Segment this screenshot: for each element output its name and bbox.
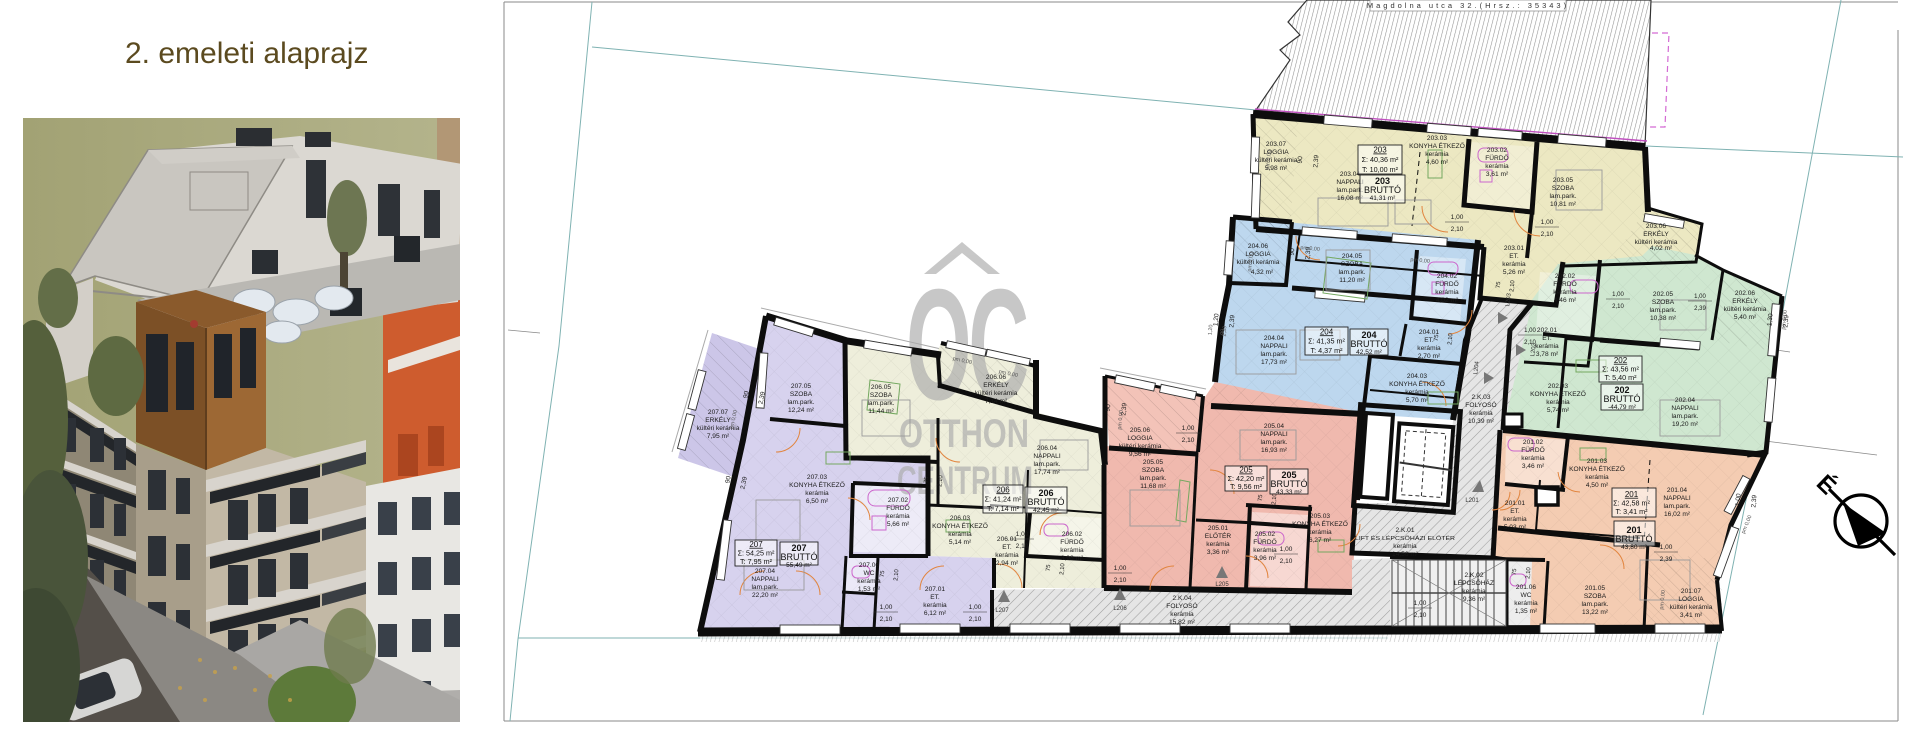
svg-text:2,10: 2,10 bbox=[1525, 566, 1532, 579]
svg-text:L206: L206 bbox=[1113, 606, 1127, 612]
svg-text:207.07: 207.07 bbox=[708, 409, 729, 416]
svg-text:1,00: 1,00 bbox=[1280, 546, 1293, 553]
svg-text:1,20: 1,20 bbox=[1208, 324, 1215, 335]
svg-text:2,10: 2,10 bbox=[880, 616, 893, 623]
svg-text:202.06: 202.06 bbox=[1735, 290, 1756, 297]
svg-text:5,03 m²: 5,03 m² bbox=[1504, 524, 1527, 531]
svg-text:207.05: 207.05 bbox=[791, 383, 812, 390]
svg-text:203.06: 203.06 bbox=[1646, 223, 1667, 230]
svg-text:204.03: 204.03 bbox=[1407, 373, 1428, 380]
svg-text:ET.: ET. bbox=[1510, 508, 1520, 515]
svg-text:1,00: 1,00 bbox=[1734, 493, 1742, 507]
svg-text:205.06: 205.06 bbox=[1130, 427, 1151, 434]
svg-text:4,32 m²: 4,32 m² bbox=[1251, 269, 1274, 276]
svg-text:206.05: 206.05 bbox=[871, 384, 892, 391]
svg-text:203.04: 203.04 bbox=[1340, 171, 1361, 178]
svg-text:lam.park.: lam.park. bbox=[1549, 193, 1576, 200]
svg-text:kerámia: kerámia bbox=[1521, 455, 1545, 462]
svg-text:2,10: 2,10 bbox=[937, 474, 944, 487]
svg-text:202.02: 202.02 bbox=[1555, 273, 1576, 280]
svg-text:204.06: 204.06 bbox=[1248, 243, 1269, 250]
svg-text:Σ: 41,24 m²: Σ: 41,24 m² bbox=[985, 495, 1022, 504]
svg-text:BRUTTÓ: BRUTTÓ bbox=[1604, 394, 1641, 404]
svg-text:lam.park.: lam.park. bbox=[1033, 461, 1060, 468]
svg-text:2,70 m²: 2,70 m² bbox=[1418, 353, 1441, 360]
svg-text:kültéri kerámia: kültéri kerámia bbox=[1724, 306, 1767, 313]
svg-text:10,81 m²: 10,81 m² bbox=[1550, 201, 1577, 208]
svg-text:1,00: 1,00 bbox=[1114, 565, 1127, 572]
svg-text:201.03: 201.03 bbox=[1587, 458, 1608, 465]
svg-text:LOGGIA: LOGGIA bbox=[1127, 435, 1153, 442]
svg-text:75: 75 bbox=[1496, 281, 1503, 289]
svg-text:9,36 m²: 9,36 m² bbox=[1463, 596, 1486, 603]
svg-text:T: 9,56 m²: T: 9,56 m² bbox=[1230, 482, 1263, 491]
svg-text:KONYHA ÉTKEZŐ: KONYHA ÉTKEZŐ bbox=[1292, 519, 1348, 528]
svg-text:3,61 m²: 3,61 m² bbox=[1486, 171, 1509, 178]
svg-text:SZOBA: SZOBA bbox=[1584, 593, 1607, 600]
svg-text:17,74 m²: 17,74 m² bbox=[1034, 469, 1061, 476]
svg-text:FOLYOSÓ: FOLYOSÓ bbox=[1166, 601, 1197, 610]
svg-text:205.05: 205.05 bbox=[1143, 459, 1164, 466]
svg-text:NAPPALI: NAPPALI bbox=[1260, 431, 1288, 438]
svg-text:lam.park.: lam.park. bbox=[1663, 503, 1690, 510]
svg-text:206.03: 206.03 bbox=[950, 515, 971, 522]
svg-text:16,93 m²: 16,93 m² bbox=[1261, 447, 1288, 454]
svg-text:204.02: 204.02 bbox=[1437, 273, 1458, 280]
svg-text:ERKÉLY: ERKÉLY bbox=[983, 380, 1009, 389]
svg-text:2.K.04: 2.K.04 bbox=[1172, 595, 1191, 602]
svg-text:1,00: 1,00 bbox=[1541, 219, 1554, 226]
svg-text:204.04: 204.04 bbox=[1264, 335, 1285, 342]
svg-text:2,10: 2,10 bbox=[1612, 304, 1624, 310]
svg-text:2,10: 2,10 bbox=[969, 616, 982, 623]
svg-text:90: 90 bbox=[1105, 404, 1113, 412]
svg-text:2. emeleti alaprajz: 2. emeleti alaprajz bbox=[125, 37, 368, 70]
svg-text:55,49 m²: 55,49 m² bbox=[786, 562, 812, 569]
svg-text:201.02: 201.02 bbox=[1523, 439, 1544, 446]
svg-text:kerámia: kerámia bbox=[1485, 163, 1509, 170]
svg-text:kerámia: kerámia bbox=[995, 552, 1019, 559]
svg-text:kültéri kerámia: kültéri kerámia bbox=[1119, 443, 1162, 450]
svg-text:kerámia: kerámia bbox=[1503, 516, 1527, 523]
svg-text:10,39 m²: 10,39 m² bbox=[1468, 418, 1495, 425]
svg-text:ET.: ET. bbox=[930, 594, 940, 601]
svg-text:Magdolna utca 32.(Hrsz.: 35343: Magdolna utca 32.(Hrsz.: 35343) bbox=[1367, 1, 1569, 10]
svg-text:204: 204 bbox=[1320, 327, 1334, 336]
svg-text:kerámia: kerámia bbox=[923, 602, 947, 609]
svg-text:2,94 m²: 2,94 m² bbox=[996, 560, 1019, 567]
svg-text:kerámia: kerámia bbox=[1462, 588, 1486, 595]
svg-text:T: 10,00 m²: T: 10,00 m² bbox=[1362, 165, 1399, 174]
svg-text:201.01: 201.01 bbox=[1505, 500, 1526, 507]
svg-text:2,10: 2,10 bbox=[1280, 558, 1293, 565]
svg-text:41,31 m²: 41,31 m² bbox=[1370, 195, 1396, 202]
svg-text:90: 90 bbox=[1297, 156, 1305, 164]
svg-text:T: 7,14 m²: T: 7,14 m² bbox=[987, 504, 1020, 513]
svg-text:17,73 m²: 17,73 m² bbox=[1261, 359, 1288, 366]
svg-text:1,53 m²: 1,53 m² bbox=[858, 586, 881, 593]
svg-text:FÜRDŐ: FÜRDŐ bbox=[1553, 279, 1576, 288]
svg-text:201.07: 201.07 bbox=[1681, 588, 1702, 595]
svg-text:NAPPALI: NAPPALI bbox=[1671, 405, 1699, 412]
svg-text:kerámia: kerámia bbox=[1502, 261, 1526, 268]
svg-text:6,12 m²: 6,12 m² bbox=[924, 610, 947, 617]
svg-text:FÜRDŐ: FÜRDŐ bbox=[1435, 279, 1458, 288]
svg-text:42,52 m²: 42,52 m² bbox=[1356, 349, 1382, 356]
svg-text:lam.park.: lam.park. bbox=[1139, 475, 1166, 482]
svg-text:5,74 m²: 5,74 m² bbox=[1547, 407, 1570, 414]
svg-text:2,10: 2,10 bbox=[893, 568, 900, 581]
svg-text:Σ: 40,36 m²: Σ: 40,36 m² bbox=[1362, 155, 1399, 164]
svg-text:SZOBA: SZOBA bbox=[1652, 299, 1675, 306]
svg-text:14,56 m²: 14,56 m² bbox=[1392, 551, 1419, 558]
svg-text:207.01: 207.01 bbox=[925, 586, 946, 593]
svg-text:2.K.02: 2.K.02 bbox=[1464, 572, 1483, 579]
svg-text:203: 203 bbox=[1373, 146, 1387, 155]
svg-text:4,60 m²: 4,60 m² bbox=[1426, 159, 1449, 166]
svg-text:kerámia: kerámia bbox=[1308, 529, 1332, 536]
svg-text:75: 75 bbox=[1046, 564, 1053, 572]
svg-text:ET.: ET. bbox=[1424, 337, 1434, 344]
svg-text:22,20 m²: 22,20 m² bbox=[752, 592, 779, 599]
svg-text:206.01: 206.01 bbox=[997, 536, 1018, 543]
svg-text:13,22 m²: 13,22 m² bbox=[1582, 609, 1609, 616]
svg-text:16,02 m²: 16,02 m² bbox=[1664, 511, 1691, 518]
svg-text:75: 75 bbox=[1258, 494, 1265, 502]
svg-text:1,00: 1,00 bbox=[1694, 294, 1706, 300]
svg-text:1,00: 1,00 bbox=[1016, 531, 1029, 538]
svg-text:15,82 m²: 15,82 m² bbox=[1169, 619, 1196, 626]
svg-text:KONYHA ÉTKEZŐ: KONYHA ÉTKEZŐ bbox=[1409, 141, 1465, 150]
svg-text:T: 3,41 m²: T: 3,41 m² bbox=[1616, 507, 1649, 516]
svg-text:1,30: 1,30 bbox=[1766, 313, 1774, 327]
svg-text:ET.: ET. bbox=[1542, 335, 1552, 342]
svg-text:6,50 m²: 6,50 m² bbox=[806, 498, 829, 505]
svg-text:BRUTTÓ: BRUTTÓ bbox=[1351, 339, 1388, 349]
svg-text:LIFT ÉS LÉPCSŐHÁZI ELŐTÉR: LIFT ÉS LÉPCSŐHÁZI ELŐTÉR bbox=[1355, 535, 1455, 542]
svg-text:lam.park.: lam.park. bbox=[1338, 269, 1365, 276]
svg-text:2,10: 2,10 bbox=[1414, 612, 1427, 619]
svg-text:3,36 m²: 3,36 m² bbox=[1207, 549, 1230, 556]
svg-text:T: 5,40 m²: T: 5,40 m² bbox=[1605, 373, 1638, 382]
svg-text:kerámia: kerámia bbox=[886, 513, 910, 520]
svg-text:206.04: 206.04 bbox=[1037, 445, 1058, 452]
svg-text:5,66 m²: 5,66 m² bbox=[887, 521, 910, 528]
svg-text:205.03: 205.03 bbox=[1310, 513, 1331, 520]
svg-text:10,38 m²: 10,38 m² bbox=[1650, 315, 1677, 322]
svg-text:5,14 m²: 5,14 m² bbox=[949, 539, 972, 546]
svg-text:kerámia: kerámia bbox=[1514, 600, 1538, 607]
svg-text:kültéri kerámia: kültéri kerámia bbox=[1255, 157, 1298, 164]
svg-text:kerámia: kerámia bbox=[1393, 543, 1417, 550]
svg-text:204.05: 204.05 bbox=[1342, 253, 1363, 260]
svg-text:4,46 m²: 4,46 m² bbox=[1554, 297, 1577, 304]
svg-text:SZOBA: SZOBA bbox=[790, 391, 813, 398]
svg-text:kerámia: kerámia bbox=[1170, 611, 1194, 618]
svg-text:BRUTTÓ: BRUTTÓ bbox=[1028, 497, 1065, 507]
svg-text:FÜRDŐ: FÜRDŐ bbox=[1060, 537, 1083, 546]
svg-text:1,20: 1,20 bbox=[1212, 313, 1220, 327]
svg-text:Σ: 54,25 m²: Σ: 54,25 m² bbox=[738, 548, 775, 557]
svg-text:205.02: 205.02 bbox=[1255, 531, 1276, 538]
svg-text:NAPPALI: NAPPALI bbox=[1260, 343, 1288, 350]
svg-text:kültéri kerámia: kültéri kerámia bbox=[1237, 259, 1280, 266]
svg-text:SZOBA: SZOBA bbox=[1142, 467, 1165, 474]
svg-text:BRUTTÓ: BRUTTÓ bbox=[1271, 479, 1308, 489]
svg-text:201.06: 201.06 bbox=[1516, 584, 1537, 591]
svg-text:2,10: 2,10 bbox=[1447, 332, 1454, 345]
svg-text:lam.park.: lam.park. bbox=[1260, 351, 1287, 358]
svg-text:207.03: 207.03 bbox=[807, 474, 828, 481]
svg-text:SZOBA: SZOBA bbox=[870, 392, 893, 399]
svg-text:9,56 m²: 9,56 m² bbox=[1129, 451, 1152, 458]
svg-text:2,10: 2,10 bbox=[1451, 226, 1464, 233]
svg-text:2,39: 2,39 bbox=[1750, 494, 1758, 508]
svg-text:kerámia: kerámia bbox=[948, 531, 972, 538]
svg-text:203.03: 203.03 bbox=[1427, 135, 1448, 142]
svg-text:ERKÉLY: ERKÉLY bbox=[1732, 296, 1758, 305]
svg-text:11,68 m²: 11,68 m² bbox=[1140, 483, 1166, 490]
svg-text:OTTHON: OTTHON bbox=[899, 412, 1029, 456]
svg-text:1,00: 1,00 bbox=[880, 604, 893, 611]
svg-text:207.02: 207.02 bbox=[888, 497, 909, 504]
svg-text:207.06: 207.06 bbox=[859, 562, 880, 569]
svg-text:2,10: 2,10 bbox=[1541, 231, 1554, 238]
svg-text:202.01: 202.01 bbox=[1537, 327, 1558, 334]
svg-text:4,02 m²: 4,02 m² bbox=[1436, 297, 1459, 304]
svg-text:2,10: 2,10 bbox=[1271, 492, 1278, 505]
svg-text:202.03: 202.03 bbox=[1548, 383, 1569, 390]
svg-text:lam.park.: lam.park. bbox=[867, 400, 894, 407]
svg-text:BRUTTÓ: BRUTTÓ bbox=[1616, 534, 1653, 544]
svg-text:FÜRDŐ: FÜRDŐ bbox=[1253, 537, 1276, 546]
svg-text:11,20 m²: 11,20 m² bbox=[1339, 277, 1365, 284]
svg-text:WC: WC bbox=[864, 570, 875, 577]
svg-text:5,40 m²: 5,40 m² bbox=[1734, 314, 1757, 321]
svg-text:203.01: 203.01 bbox=[1504, 245, 1525, 252]
svg-text:202.05: 202.05 bbox=[1653, 291, 1674, 298]
svg-text:T: 7,95 m²: T: 7,95 m² bbox=[740, 557, 773, 566]
svg-text:L205: L205 bbox=[1215, 582, 1229, 588]
svg-text:Σ: 41,35 m²: Σ: 41,35 m² bbox=[1308, 337, 1345, 346]
svg-text:FÜRDŐ: FÜRDŐ bbox=[886, 503, 909, 512]
svg-text:lam.park.: lam.park. bbox=[1649, 307, 1676, 314]
svg-text:75: 75 bbox=[880, 570, 887, 578]
svg-text:lam.park.: lam.park. bbox=[1671, 413, 1698, 420]
svg-text:ERKÉLY: ERKÉLY bbox=[705, 415, 731, 424]
svg-text:75: 75 bbox=[1434, 334, 1441, 342]
svg-text:203.07: 203.07 bbox=[1266, 141, 1287, 148]
svg-text:2,39: 2,39 bbox=[1694, 306, 1706, 312]
svg-text:5,70 m²: 5,70 m² bbox=[1406, 397, 1429, 404]
svg-text:11,44 m²: 11,44 m² bbox=[868, 408, 894, 415]
svg-text:KONYHA ÉTKEZŐ: KONYHA ÉTKEZŐ bbox=[932, 521, 988, 530]
svg-text:5,26 m²: 5,26 m² bbox=[1503, 269, 1526, 276]
svg-text:2.K.01: 2.K.01 bbox=[1395, 527, 1414, 534]
svg-text:lam.park.: lam.park. bbox=[1260, 439, 1287, 446]
svg-text:1,00: 1,00 bbox=[1414, 600, 1427, 607]
svg-text:3,96 m²: 3,96 m² bbox=[1254, 555, 1277, 562]
svg-text:205.01: 205.01 bbox=[1208, 525, 1229, 532]
svg-text:201.04: 201.04 bbox=[1667, 487, 1688, 494]
svg-text:75: 75 bbox=[1512, 568, 1519, 576]
svg-text:75: 75 bbox=[924, 476, 931, 484]
svg-text:2,39: 2,39 bbox=[1312, 154, 1320, 168]
svg-text:2.K.03: 2.K.03 bbox=[1471, 394, 1490, 401]
svg-text:2,10: 2,10 bbox=[1059, 562, 1066, 575]
svg-text:kerámia: kerámia bbox=[857, 578, 881, 585]
svg-text:LOGGIA: LOGGIA bbox=[1678, 596, 1704, 603]
svg-text:Σ: 42,58 m²: Σ: 42,58 m² bbox=[1613, 498, 1650, 507]
svg-text:43,80 m²: 43,80 m² bbox=[1621, 544, 1647, 551]
svg-text:1,35 m²: 1,35 m² bbox=[1515, 608, 1538, 615]
svg-text:kerámia: kerámia bbox=[1469, 410, 1493, 417]
svg-text:2,10: 2,10 bbox=[1509, 279, 1516, 292]
svg-text:kerámia: kerámia bbox=[1206, 541, 1230, 548]
svg-text:kerámia: kerámia bbox=[1060, 547, 1084, 554]
svg-text:KONYHA ÉTKEZŐ: KONYHA ÉTKEZŐ bbox=[1530, 389, 1586, 398]
svg-text:ET.: ET. bbox=[1002, 544, 1012, 551]
svg-text:SZOBA: SZOBA bbox=[1341, 261, 1364, 268]
svg-text:L207: L207 bbox=[995, 608, 1009, 614]
svg-text:207.04: 207.04 bbox=[755, 568, 776, 575]
svg-text:201.05: 201.05 bbox=[1585, 585, 1606, 592]
svg-text:12,24 m²: 12,24 m² bbox=[788, 407, 815, 414]
svg-text:2,10: 2,10 bbox=[1182, 437, 1195, 444]
svg-text:ERKÉLY: ERKÉLY bbox=[1643, 229, 1669, 238]
svg-text:kerámia: kerámia bbox=[1546, 399, 1570, 406]
svg-text:203.05: 203.05 bbox=[1553, 177, 1574, 184]
svg-text:2,39: 2,39 bbox=[1228, 314, 1236, 328]
svg-text:BRUTTÓ: BRUTTÓ bbox=[781, 552, 818, 562]
svg-text:kültéri kerámia: kültéri kerámia bbox=[975, 390, 1018, 397]
svg-text:1,00: 1,00 bbox=[1524, 328, 1536, 334]
svg-text:kültéri kerámia: kültéri kerámia bbox=[1670, 604, 1713, 611]
svg-text:1,00: 1,00 bbox=[969, 604, 982, 611]
svg-text:T: 4,37 m²: T: 4,37 m² bbox=[1311, 346, 1344, 355]
svg-text:SZOBA: SZOBA bbox=[1552, 185, 1575, 192]
svg-text:42,45 m²: 42,45 m² bbox=[1033, 507, 1059, 514]
svg-text:3,41 m²: 3,41 m² bbox=[1680, 612, 1703, 619]
svg-text:90: 90 bbox=[1220, 329, 1227, 336]
svg-text:kerámia: kerámia bbox=[805, 490, 829, 497]
svg-text:kerámia: kerámia bbox=[1417, 345, 1441, 352]
svg-text:1,00: 1,00 bbox=[1612, 292, 1624, 298]
svg-text:2,10: 2,10 bbox=[1114, 577, 1127, 584]
svg-text:kerámia: kerámia bbox=[1405, 389, 1429, 396]
svg-text:7,95 m²: 7,95 m² bbox=[707, 433, 730, 440]
svg-text:-44,79 m²: -44,79 m² bbox=[1608, 404, 1637, 411]
svg-text:206: 206 bbox=[996, 485, 1010, 494]
svg-text:NAPPALI: NAPPALI bbox=[751, 576, 779, 583]
svg-text:4,02 m²: 4,02 m² bbox=[1650, 245, 1673, 252]
svg-text:KONYHA ÉTKEZŐ: KONYHA ÉTKEZŐ bbox=[789, 480, 845, 489]
svg-text:kerámia: kerámia bbox=[1253, 547, 1277, 554]
svg-text:FÜRDŐ: FÜRDŐ bbox=[1521, 445, 1544, 454]
svg-text:1,00: 1,00 bbox=[1451, 214, 1464, 221]
svg-text:KONYHA ÉTKEZŐ: KONYHA ÉTKEZŐ bbox=[1569, 464, 1625, 473]
svg-text:lam.park.: lam.park. bbox=[787, 399, 814, 406]
svg-text:WC: WC bbox=[1521, 592, 1532, 599]
svg-text:1,00: 1,00 bbox=[1660, 544, 1673, 551]
svg-text:90: 90 bbox=[1289, 248, 1297, 256]
svg-text:3,46 m²: 3,46 m² bbox=[1522, 463, 1545, 470]
svg-text:LÉPCSŐHÁZ: LÉPCSŐHÁZ bbox=[1454, 578, 1494, 587]
svg-text:19,20 m²: 19,20 m² bbox=[1672, 421, 1699, 428]
svg-text:kerámia: kerámia bbox=[1535, 343, 1559, 350]
svg-text:Σ: 43,56 m²: Σ: 43,56 m² bbox=[1602, 364, 1639, 373]
svg-text:3,98 m²: 3,98 m² bbox=[1061, 555, 1084, 562]
svg-text:lam.park.: lam.park. bbox=[751, 584, 778, 591]
svg-text:43,33 m²: 43,33 m² bbox=[1276, 489, 1302, 496]
svg-text:NAPPALI: NAPPALI bbox=[1033, 453, 1061, 460]
svg-text:6,27 m²: 6,27 m² bbox=[1309, 537, 1332, 544]
svg-text:kerámia: kerámia bbox=[1585, 474, 1609, 481]
svg-text:3,78 m²: 3,78 m² bbox=[1536, 351, 1559, 358]
svg-text:1,00: 1,00 bbox=[1182, 425, 1195, 432]
svg-text:2,10: 2,10 bbox=[1016, 543, 1029, 550]
svg-text:FÜRDŐ: FÜRDŐ bbox=[1485, 153, 1508, 162]
svg-text:205.04: 205.04 bbox=[1264, 423, 1285, 430]
svg-text:kerámia: kerámia bbox=[1553, 289, 1577, 296]
svg-text:ELŐTÉR: ELŐTÉR bbox=[1205, 531, 1232, 540]
svg-text:FOLYOSÓ: FOLYOSÓ bbox=[1465, 400, 1496, 409]
svg-text:ET.: ET. bbox=[1509, 253, 1519, 260]
svg-text:7,14 m²: 7,14 m² bbox=[985, 398, 1008, 405]
svg-text:kerámia: kerámia bbox=[1425, 151, 1449, 158]
svg-text:L201: L201 bbox=[1465, 498, 1479, 504]
svg-text:BRUTTÓ: BRUTTÓ bbox=[1364, 185, 1401, 195]
svg-text:2,39: 2,39 bbox=[1660, 556, 1673, 563]
svg-text:kerámia: kerámia bbox=[1435, 289, 1459, 296]
svg-text:lam.park.: lam.park. bbox=[1581, 601, 1608, 608]
svg-text:NAPPALI: NAPPALI bbox=[1663, 495, 1691, 502]
svg-text:202.04: 202.04 bbox=[1675, 397, 1696, 404]
svg-text:KONYHA ÉTKEZŐ: KONYHA ÉTKEZŐ bbox=[1389, 379, 1445, 388]
svg-text:4,50 m²: 4,50 m² bbox=[1586, 482, 1609, 489]
svg-text:206.02: 206.02 bbox=[1062, 531, 1083, 538]
svg-text:203.02: 203.02 bbox=[1487, 147, 1508, 154]
